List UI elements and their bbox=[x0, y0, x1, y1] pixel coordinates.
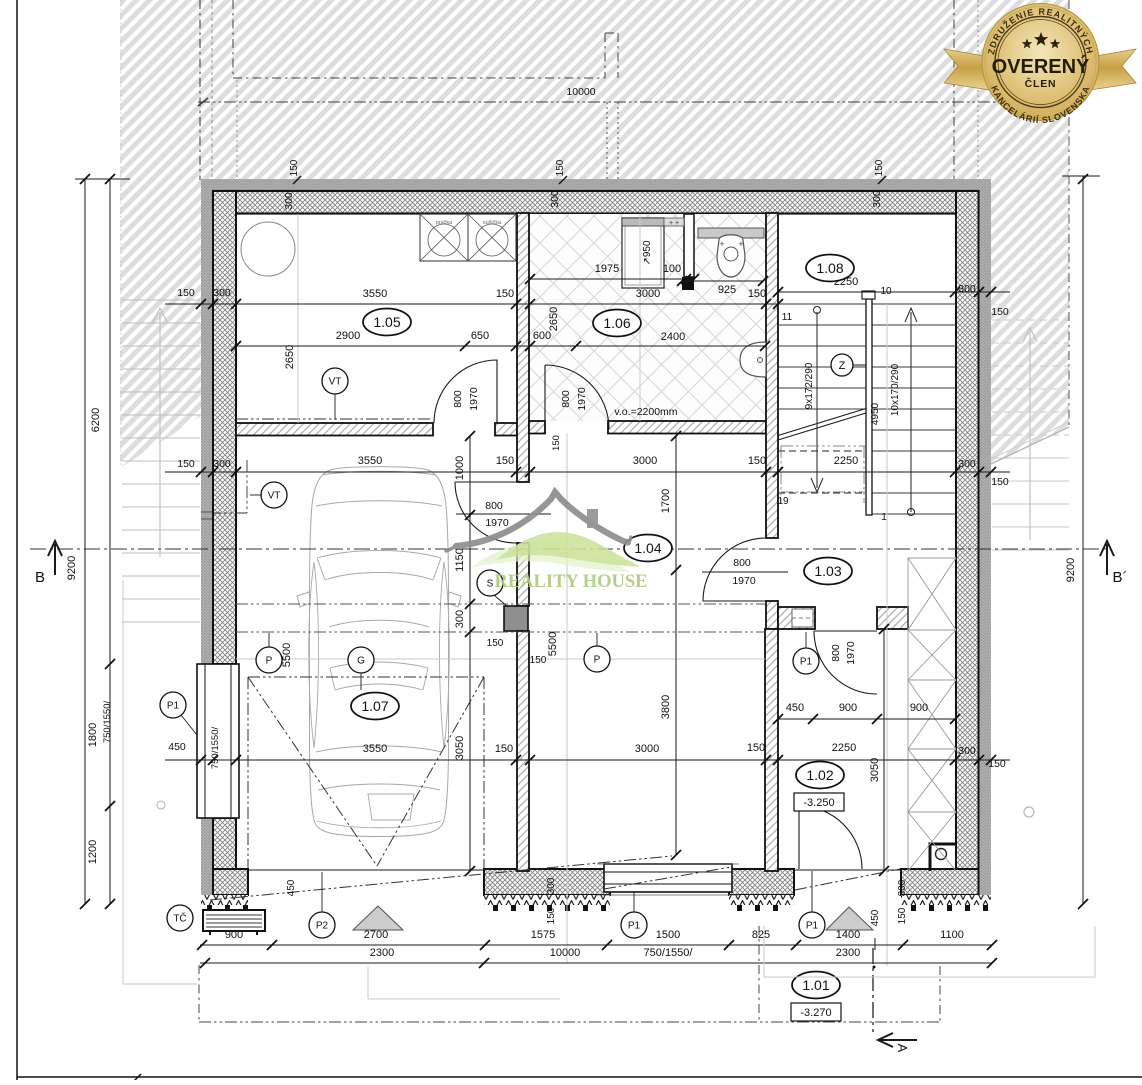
svg-text:1.01: 1.01 bbox=[802, 977, 829, 993]
svg-text:+ +: + + bbox=[669, 220, 679, 227]
svg-text:P: P bbox=[266, 656, 273, 667]
svg-text:+: + bbox=[719, 239, 724, 249]
svg-text:1.07: 1.07 bbox=[361, 698, 388, 714]
svg-text:v.o.=2200mm: v.o.=2200mm bbox=[614, 406, 677, 418]
svg-text:ČLEN: ČLEN bbox=[1025, 77, 1057, 90]
svg-text:-3.270: -3.270 bbox=[800, 1007, 831, 1019]
svg-text:900: 900 bbox=[910, 702, 928, 714]
svg-text:450: 450 bbox=[286, 879, 297, 896]
svg-text:800: 800 bbox=[452, 390, 464, 408]
svg-text:300: 300 bbox=[213, 287, 231, 299]
svg-text:900: 900 bbox=[839, 702, 857, 714]
svg-text:800: 800 bbox=[830, 644, 842, 662]
svg-text:1.04: 1.04 bbox=[634, 540, 661, 556]
svg-text:P: P bbox=[594, 655, 601, 666]
svg-text:10000: 10000 bbox=[566, 86, 595, 98]
svg-text:150: 150 bbox=[988, 758, 1006, 770]
svg-text:P1: P1 bbox=[628, 921, 641, 932]
svg-text:1975: 1975 bbox=[595, 263, 619, 275]
svg-text:3000: 3000 bbox=[633, 455, 657, 467]
svg-text:6200: 6200 bbox=[90, 408, 102, 432]
svg-text:300: 300 bbox=[958, 745, 976, 757]
svg-text:2400: 2400 bbox=[661, 331, 685, 343]
svg-text:sušička: sušička bbox=[483, 220, 502, 226]
svg-text:150: 150 bbox=[748, 455, 766, 467]
svg-text:150: 150 bbox=[546, 907, 557, 924]
svg-text:1970: 1970 bbox=[576, 387, 588, 411]
svg-text:150: 150 bbox=[874, 159, 885, 176]
svg-text:2250: 2250 bbox=[834, 455, 858, 467]
svg-text:B´: B´ bbox=[1113, 569, 1128, 586]
svg-text:150: 150 bbox=[991, 476, 1009, 488]
svg-text:150: 150 bbox=[991, 306, 1009, 318]
svg-text:9200: 9200 bbox=[66, 556, 78, 580]
svg-text:S: S bbox=[487, 579, 494, 590]
svg-text:300: 300 bbox=[958, 283, 976, 295]
svg-text:300: 300 bbox=[454, 610, 466, 628]
svg-text:1.02: 1.02 bbox=[806, 767, 833, 783]
svg-text:2650: 2650 bbox=[548, 307, 560, 331]
svg-text:1100: 1100 bbox=[940, 929, 964, 941]
svg-text:150: 150 bbox=[530, 655, 547, 666]
svg-text:1150: 1150 bbox=[454, 548, 466, 572]
svg-text:5500: 5500 bbox=[281, 643, 293, 667]
svg-text:100: 100 bbox=[663, 263, 681, 275]
svg-text:1: 1 bbox=[881, 512, 887, 523]
svg-text:3000: 3000 bbox=[635, 743, 659, 755]
svg-text:750/1550/: 750/1550/ bbox=[210, 727, 221, 770]
svg-text:3550: 3550 bbox=[363, 288, 387, 300]
svg-text:650: 650 bbox=[471, 330, 489, 342]
svg-text:3050: 3050 bbox=[869, 758, 881, 782]
svg-text:P1: P1 bbox=[800, 657, 813, 668]
svg-text:1000: 1000 bbox=[454, 456, 466, 480]
svg-text:450: 450 bbox=[786, 702, 804, 714]
svg-text:Z: Z bbox=[839, 360, 846, 372]
svg-text:3000: 3000 bbox=[636, 288, 660, 300]
svg-text:750/1550/: 750/1550/ bbox=[102, 701, 113, 744]
svg-text:1.06: 1.06 bbox=[603, 315, 630, 331]
svg-text:800: 800 bbox=[733, 557, 751, 569]
svg-text:10x170/290: 10x170/290 bbox=[890, 363, 901, 416]
svg-text:1500: 1500 bbox=[656, 929, 680, 941]
svg-text:REALITY HOUSE: REALITY HOUSE bbox=[494, 572, 647, 592]
svg-text:900: 900 bbox=[225, 929, 243, 941]
svg-text:VT: VT bbox=[329, 377, 342, 388]
svg-text:1700: 1700 bbox=[660, 489, 672, 513]
svg-text:1200: 1200 bbox=[87, 840, 99, 864]
svg-text:P2: P2 bbox=[316, 921, 329, 932]
svg-text:10000: 10000 bbox=[550, 947, 581, 959]
svg-text:150: 150 bbox=[177, 458, 195, 470]
svg-text:A: A bbox=[895, 1044, 910, 1053]
svg-text:2700: 2700 bbox=[364, 929, 388, 941]
svg-text:P1: P1 bbox=[167, 701, 180, 712]
svg-text:300: 300 bbox=[871, 190, 883, 208]
svg-text:150: 150 bbox=[289, 159, 300, 176]
svg-text:1970: 1970 bbox=[845, 641, 857, 665]
svg-text:150: 150 bbox=[551, 435, 562, 451]
svg-text:300: 300 bbox=[549, 190, 561, 208]
svg-text:450: 450 bbox=[870, 909, 881, 926]
svg-text:1575: 1575 bbox=[531, 929, 555, 941]
svg-text:150: 150 bbox=[177, 287, 195, 299]
svg-text:1970: 1970 bbox=[732, 575, 756, 587]
svg-text:9x172/290: 9x172/290 bbox=[804, 362, 815, 409]
svg-text:925: 925 bbox=[718, 284, 736, 296]
svg-text:2250: 2250 bbox=[832, 742, 856, 754]
svg-text:+: + bbox=[738, 239, 743, 249]
svg-text:150: 150 bbox=[897, 907, 908, 924]
svg-text:2650: 2650 bbox=[284, 345, 296, 369]
svg-text:9200: 9200 bbox=[1065, 558, 1077, 582]
svg-text:150: 150 bbox=[495, 743, 513, 755]
svg-text:1.08: 1.08 bbox=[816, 260, 843, 276]
svg-text:150: 150 bbox=[747, 742, 765, 754]
svg-text:150: 150 bbox=[748, 288, 766, 300]
svg-text:4950: 4950 bbox=[870, 402, 881, 425]
svg-text:práčka: práčka bbox=[436, 220, 453, 226]
svg-text:OVERENÝ: OVERENÝ bbox=[992, 54, 1090, 78]
svg-text:11: 11 bbox=[782, 312, 793, 323]
svg-text:3550: 3550 bbox=[363, 743, 387, 755]
svg-text:750/1550/: 750/1550/ bbox=[644, 947, 694, 959]
svg-text:3800: 3800 bbox=[660, 695, 672, 719]
svg-text:150: 150 bbox=[487, 638, 504, 649]
svg-text:P1: P1 bbox=[806, 921, 819, 932]
svg-text:150: 150 bbox=[496, 288, 514, 300]
svg-text:↗950: ↗950 bbox=[642, 240, 653, 266]
svg-text:-3.250: -3.250 bbox=[803, 797, 834, 809]
svg-text:2300: 2300 bbox=[370, 947, 394, 959]
svg-text:150: 150 bbox=[496, 455, 514, 467]
svg-text:300: 300 bbox=[958, 458, 976, 470]
svg-text:450: 450 bbox=[168, 741, 186, 753]
svg-text:1400: 1400 bbox=[836, 929, 860, 941]
svg-text:1970: 1970 bbox=[485, 517, 509, 529]
svg-text:1.05: 1.05 bbox=[373, 314, 400, 330]
svg-text:B: B bbox=[35, 569, 45, 586]
svg-text:1970: 1970 bbox=[468, 387, 480, 411]
svg-text:G: G bbox=[357, 656, 365, 667]
svg-text:300: 300 bbox=[213, 458, 231, 470]
svg-text:TČ: TČ bbox=[173, 912, 186, 925]
svg-text:5500: 5500 bbox=[547, 632, 559, 656]
svg-text:825: 825 bbox=[752, 929, 770, 941]
svg-text:3550: 3550 bbox=[358, 455, 382, 467]
svg-text:3050: 3050 bbox=[454, 736, 466, 760]
svg-text:VT: VT bbox=[268, 491, 281, 502]
svg-text:1800: 1800 bbox=[87, 723, 99, 747]
svg-text:300: 300 bbox=[283, 192, 295, 210]
svg-text:19: 19 bbox=[777, 496, 789, 507]
svg-text:150: 150 bbox=[555, 159, 566, 176]
svg-text:1.03: 1.03 bbox=[814, 563, 841, 579]
svg-text:2300: 2300 bbox=[836, 947, 860, 959]
svg-text:800: 800 bbox=[485, 500, 503, 512]
svg-text:300: 300 bbox=[546, 877, 557, 894]
svg-text:300: 300 bbox=[897, 879, 908, 896]
svg-text:800: 800 bbox=[560, 390, 572, 408]
svg-text:2900: 2900 bbox=[336, 330, 360, 342]
